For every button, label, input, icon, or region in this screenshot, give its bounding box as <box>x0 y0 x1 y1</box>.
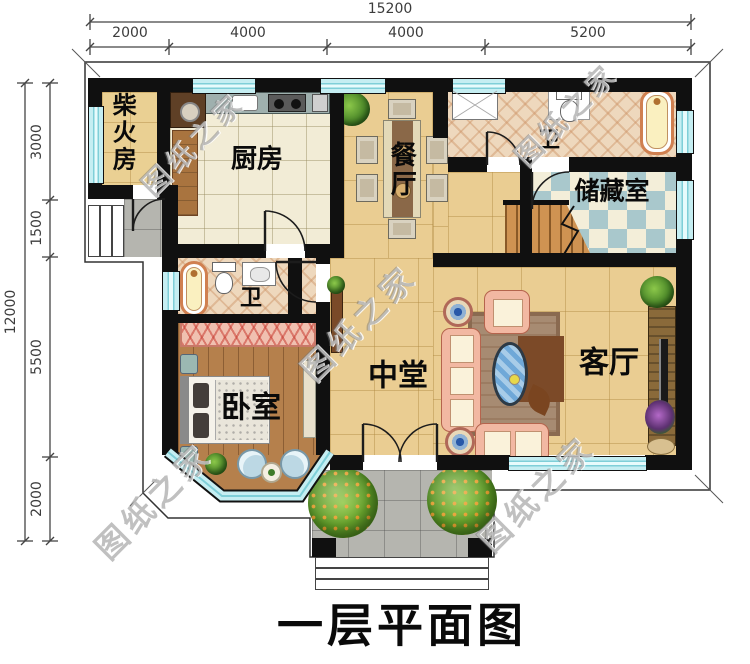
dim-total-height: 12000 <box>3 290 19 335</box>
wall-hall-bottom-a <box>330 455 363 470</box>
wall-bath-storage-c <box>569 157 676 172</box>
floor-plan-canvas: 15200 2000 4000 4000 5200 12000 3000 150… <box>0 0 750 664</box>
window <box>676 180 694 240</box>
burner-icon <box>274 99 284 109</box>
bay-table <box>261 462 282 483</box>
wall-kitchen-bottom-a <box>178 244 266 258</box>
wall-living-bottom-right <box>645 455 676 470</box>
shower-tray <box>452 90 498 120</box>
nightstand <box>180 354 198 374</box>
toilet-bowl <box>215 272 233 294</box>
dining-chair <box>388 99 416 119</box>
wall-left-lower <box>162 185 178 455</box>
tv-icon <box>659 339 668 403</box>
armchair <box>484 290 530 334</box>
window <box>88 106 104 184</box>
porch-step <box>315 557 489 568</box>
kitchen-appliance <box>312 94 328 112</box>
bay-chair <box>280 449 310 479</box>
flower-pot <box>645 400 675 434</box>
pillow <box>193 413 209 438</box>
dining-chair <box>426 174 448 202</box>
plant <box>327 276 345 294</box>
dim-segment: 1500 <box>29 210 45 246</box>
wardrobe <box>180 321 316 347</box>
dim-segment: 5200 <box>570 25 606 41</box>
dim-segment: 2000 <box>29 481 45 517</box>
sink <box>242 262 276 286</box>
burner-icon <box>291 99 301 109</box>
basket <box>647 438 675 455</box>
side-step <box>88 205 100 257</box>
window <box>452 78 506 94</box>
wall-storage-bottom <box>433 253 676 267</box>
wall-bathleft-right <box>288 258 302 314</box>
dining-chair <box>356 174 378 202</box>
dining-chair <box>388 219 416 239</box>
room-label-bedroom: 卧室 <box>221 394 281 425</box>
window <box>320 78 386 94</box>
porch-step <box>315 568 489 579</box>
wall-hall-bottom-b <box>437 455 500 470</box>
dim-segment: 4000 <box>388 25 424 41</box>
wall-hall-bedroom-stub <box>316 258 330 264</box>
porch-pillar <box>312 538 336 557</box>
pillow <box>193 383 209 408</box>
wall-bath-storage-a <box>448 157 487 172</box>
watermark: 图纸之家 <box>83 431 220 568</box>
room-label-hall: 中堂 <box>368 362 428 393</box>
dim-segment: 5500 <box>29 339 45 375</box>
dining-chair <box>426 136 448 164</box>
room-label-storage: 储藏室 <box>574 178 649 204</box>
wall-kitchen-bottom-b <box>305 244 344 258</box>
room-label-dining: 餐厅 <box>388 141 415 199</box>
dim-segment: 4000 <box>230 25 266 41</box>
basin-icon <box>250 267 270 282</box>
bush <box>308 468 378 538</box>
window <box>676 110 694 154</box>
dim-segment: 3000 <box>29 124 45 160</box>
toilet <box>212 262 236 272</box>
wall-bathleft-bottom <box>178 314 316 323</box>
dim-segment: 2000 <box>112 25 148 41</box>
wall-firewood-bottom <box>88 185 133 199</box>
sofa-three-seat <box>441 328 481 432</box>
room-label-kitchen: 厨房 <box>231 147 283 174</box>
wall-dining-bath <box>433 92 448 138</box>
porch-step <box>315 579 489 590</box>
window <box>162 271 180 311</box>
round-decor <box>443 297 473 327</box>
side-step <box>112 205 124 257</box>
page-title: 一层平面图 <box>277 603 527 650</box>
wall-storage-left <box>520 172 532 253</box>
stair-top-edge <box>503 200 569 205</box>
room-label-firewood: 柴火房 <box>110 93 134 174</box>
round-decor <box>445 427 475 457</box>
wall-kitchen-dining <box>330 92 344 258</box>
coffee-table <box>492 342 528 406</box>
bathtub <box>180 261 208 317</box>
plant <box>640 276 674 308</box>
decor-icon <box>268 469 275 476</box>
dining-chair <box>356 136 378 164</box>
stove <box>268 94 306 112</box>
room-label-living: 客厅 <box>579 349 639 380</box>
side-step <box>100 205 112 257</box>
bathtub <box>640 89 674 155</box>
dim-total-width: 15200 <box>368 1 413 17</box>
room-label-bath-left: 卫 <box>240 288 262 310</box>
fruit-icon <box>509 374 520 385</box>
